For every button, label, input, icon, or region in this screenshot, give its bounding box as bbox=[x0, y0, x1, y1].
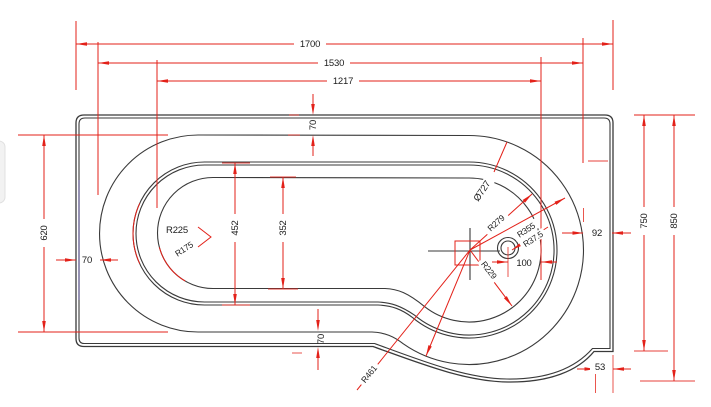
dim-1700: 1700 bbox=[300, 39, 320, 50]
dim-620: 620 bbox=[39, 225, 50, 240]
dim-70-left: 70 bbox=[82, 255, 92, 266]
r225-pointer bbox=[198, 227, 211, 247]
dim-70-top: 70 bbox=[308, 120, 319, 130]
label-r225: R225 bbox=[166, 225, 188, 236]
dimension-lines bbox=[18, 20, 695, 393]
dim-1530: 1530 bbox=[324, 58, 344, 69]
dim-452: 452 bbox=[230, 220, 241, 235]
label-r461: R461 bbox=[357, 361, 381, 387]
dim-850: 850 bbox=[669, 213, 680, 228]
tub-rim-inner bbox=[136, 165, 554, 335]
dim-53: 53 bbox=[595, 362, 605, 373]
dim-92: 92 bbox=[592, 228, 602, 239]
dim-1217: 1217 bbox=[333, 76, 353, 87]
tub-rim-outer bbox=[133, 162, 557, 338]
radius-labels: R225 R175 Ø727 R279 R355 R37.5 R229 R461 bbox=[166, 174, 547, 387]
text-backgrounds bbox=[38, 38, 680, 372]
bath-technical-drawing: 1700 1530 1217 620 70 452 352 70 70 92 7… bbox=[0, 0, 711, 407]
dim-750: 750 bbox=[639, 213, 650, 228]
dimension-labels: 1700 1530 1217 620 70 452 352 70 70 92 7… bbox=[39, 39, 680, 373]
drawing-canvas: 1700 1530 1217 620 70 452 352 70 70 92 7… bbox=[0, 0, 711, 407]
background-fragment bbox=[0, 141, 5, 203]
label-r175: R175 bbox=[173, 239, 195, 258]
label-r279: R279 bbox=[482, 210, 509, 236]
rim-inner bbox=[79, 118, 610, 379]
dim-70-bottom: 70 bbox=[316, 334, 327, 344]
dim-100: 100 bbox=[516, 258, 531, 269]
dim-352: 352 bbox=[278, 220, 289, 235]
